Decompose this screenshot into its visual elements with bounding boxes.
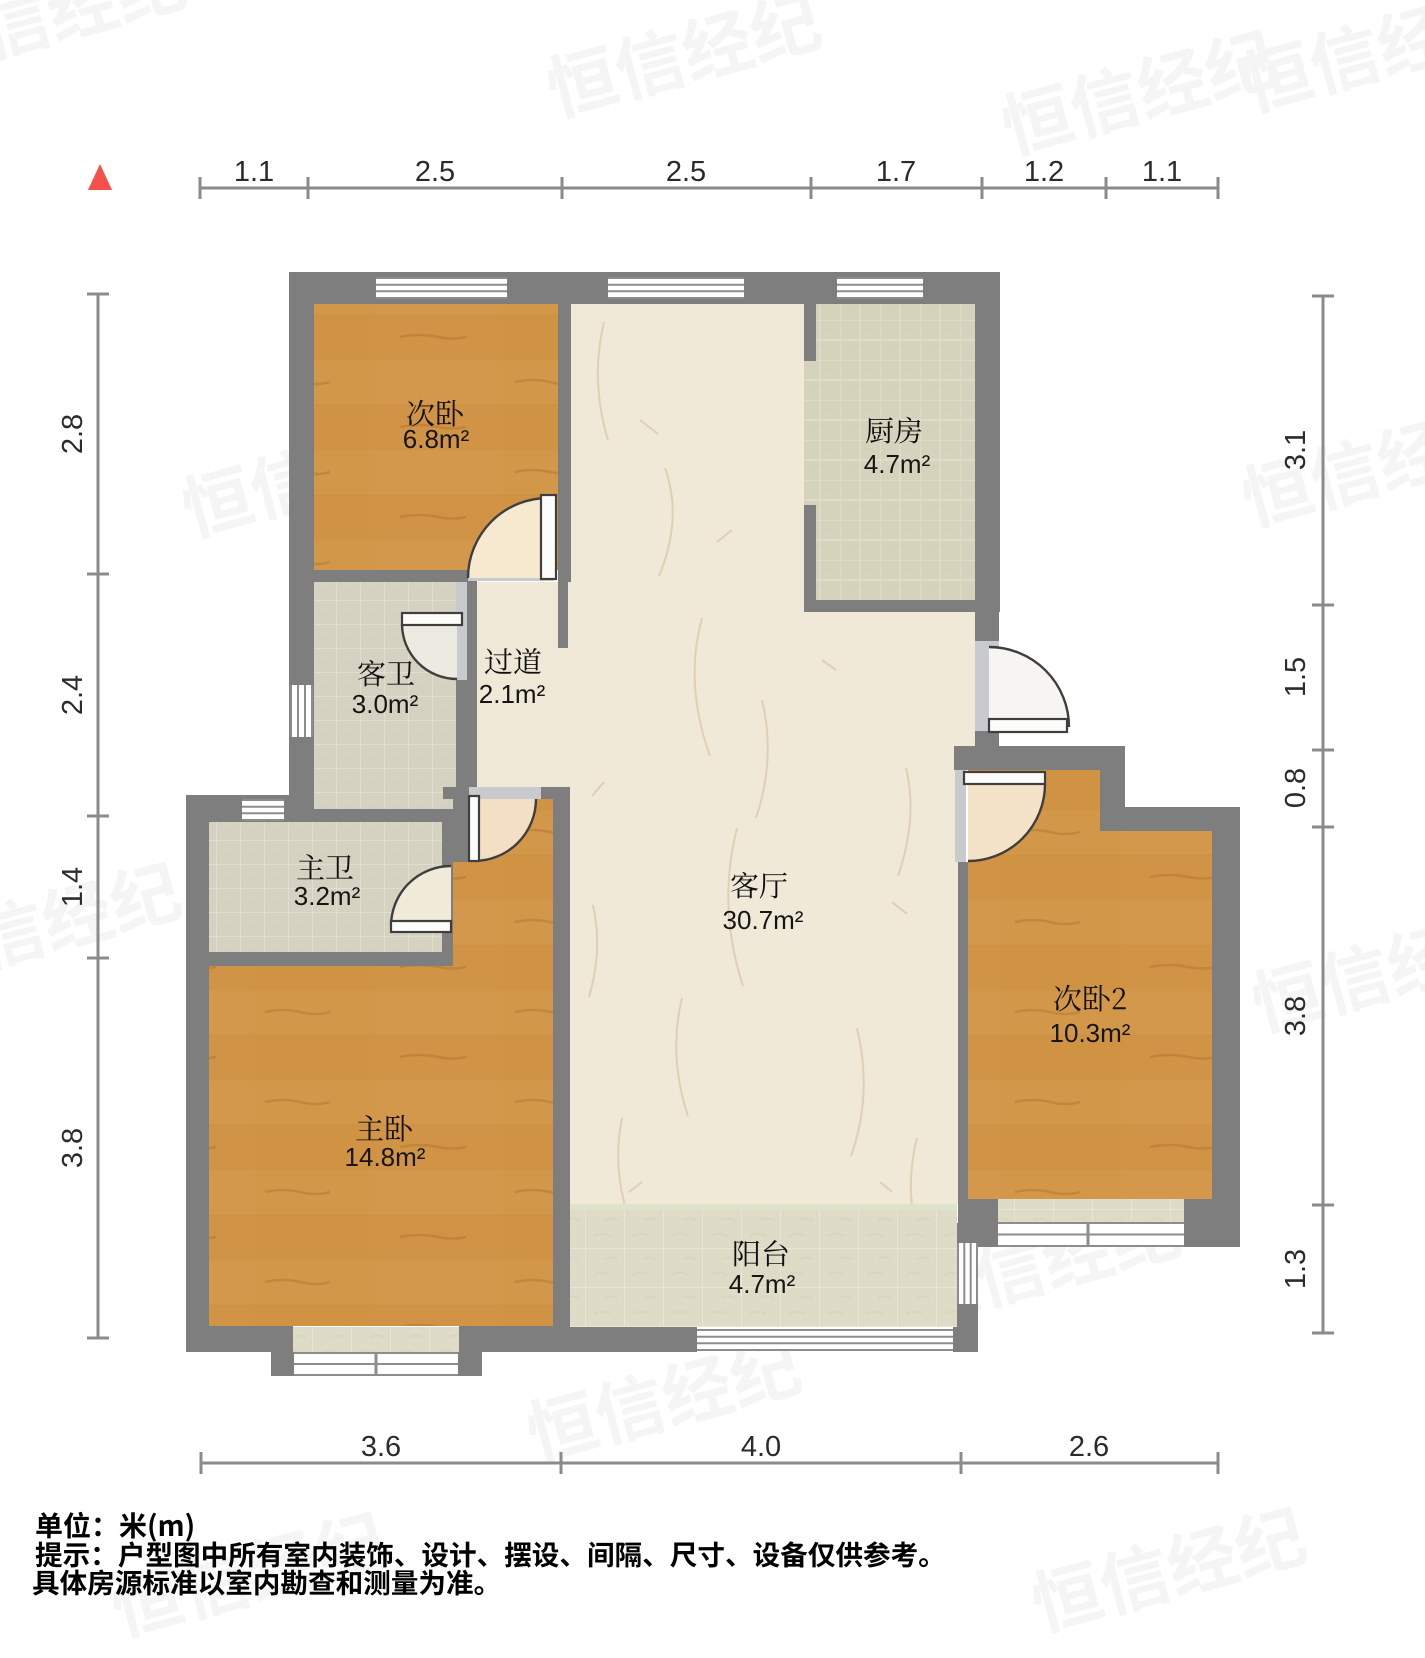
svg-text:1.1: 1.1	[1142, 156, 1182, 188]
svg-text:30.7m²: 30.7m²	[723, 905, 804, 935]
svg-text:3.6: 3.6	[361, 1431, 401, 1463]
svg-text:1.5: 1.5	[1280, 657, 1312, 697]
svg-text:4.7m²: 4.7m²	[729, 1269, 796, 1299]
svg-text:1.4: 1.4	[57, 867, 89, 907]
svg-text:2.1m²: 2.1m²	[479, 679, 546, 709]
svg-text:0.8: 0.8	[1280, 768, 1312, 808]
svg-text:1.3: 1.3	[1280, 1249, 1312, 1289]
svg-text:3.1: 3.1	[1280, 430, 1312, 470]
svg-text:1.1: 1.1	[234, 156, 274, 188]
svg-text:2.8: 2.8	[57, 414, 89, 454]
svg-text:1.7: 1.7	[876, 156, 916, 188]
svg-text:2.5: 2.5	[666, 156, 706, 188]
svg-text:1.2: 1.2	[1024, 156, 1064, 188]
svg-text:14.8m²: 14.8m²	[345, 1142, 426, 1172]
svg-text:6.8m²: 6.8m²	[403, 424, 470, 454]
svg-text:3.0m²: 3.0m²	[352, 689, 419, 719]
svg-text:2.5: 2.5	[415, 156, 455, 188]
svg-text:3.8: 3.8	[57, 1128, 89, 1168]
svg-text:3.2m²: 3.2m²	[294, 881, 361, 911]
svg-text:3.8: 3.8	[1280, 996, 1312, 1036]
svg-text:4.0: 4.0	[741, 1431, 781, 1463]
svg-text:10.3m²: 10.3m²	[1050, 1018, 1131, 1048]
svg-text:4.7m²: 4.7m²	[864, 449, 931, 479]
svg-text:2.6: 2.6	[1069, 1431, 1109, 1463]
svg-text:2.4: 2.4	[57, 675, 89, 715]
